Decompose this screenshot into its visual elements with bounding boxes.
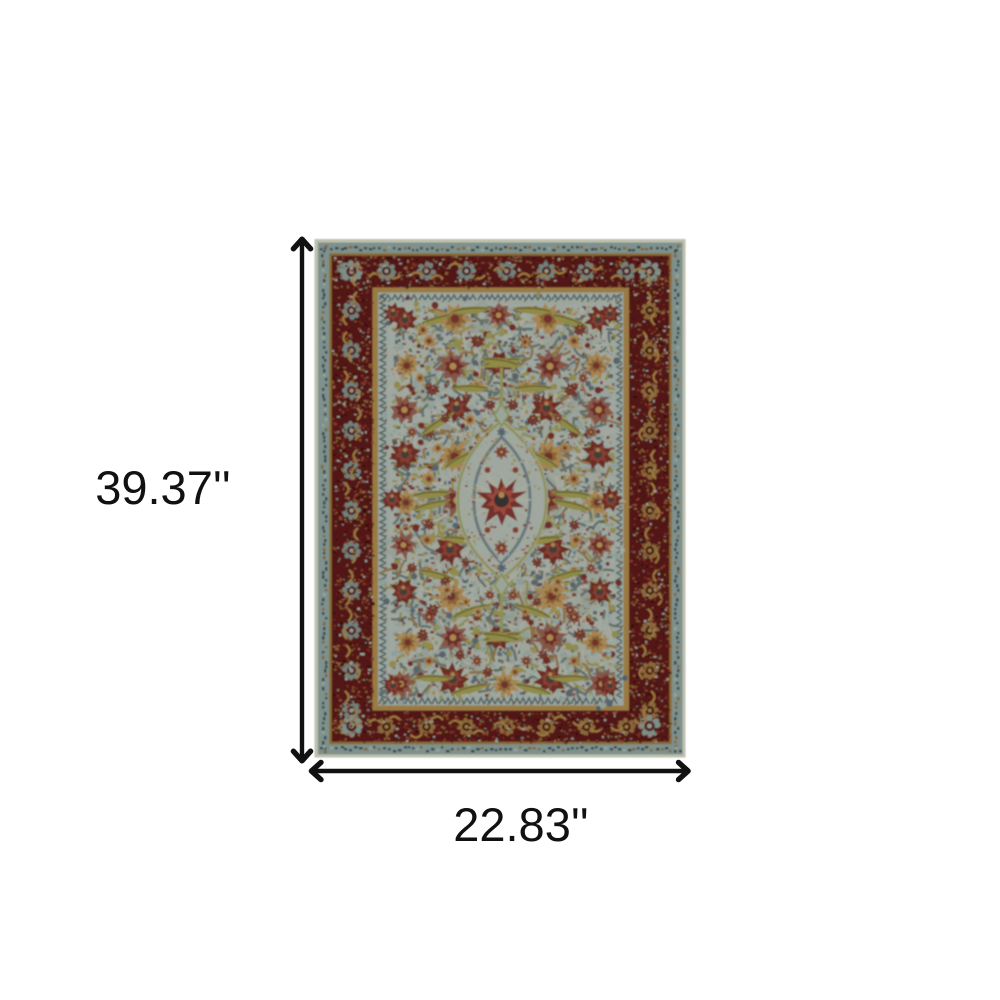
svg-text:39.37'': 39.37'' [95, 461, 231, 514]
svg-text:22.83'': 22.83'' [453, 798, 589, 851]
